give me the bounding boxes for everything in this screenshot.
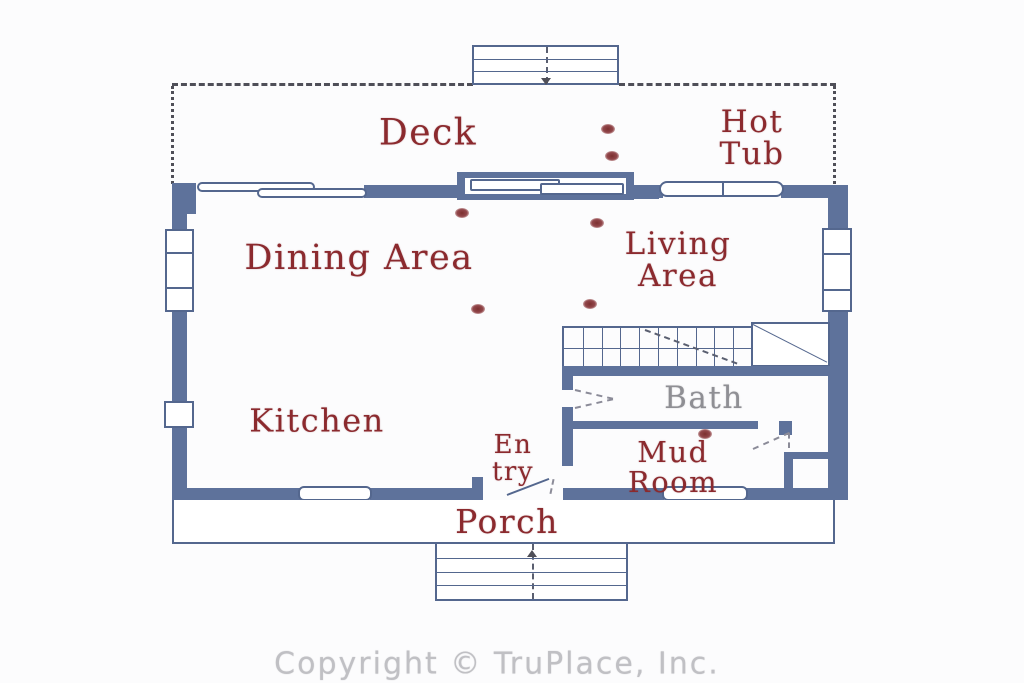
mud-room-label: Mud Room bbox=[628, 437, 718, 497]
deck-boundary-left bbox=[171, 86, 174, 184]
ceiling-light-dot bbox=[583, 299, 597, 309]
ceiling-light-dot bbox=[455, 208, 469, 218]
stair-tread bbox=[639, 328, 640, 368]
patio-door-tab-right bbox=[633, 190, 659, 199]
living-area-label: Living Area bbox=[625, 228, 732, 292]
stair-tread bbox=[583, 328, 584, 368]
window-kitchen-left bbox=[164, 401, 194, 428]
stair-tread bbox=[677, 328, 678, 368]
stair-tread bbox=[474, 71, 617, 72]
bath-door-swing-upper bbox=[575, 389, 613, 400]
stair-tread bbox=[474, 59, 617, 60]
dining-area-label: Dining Area bbox=[244, 240, 473, 276]
kitchen-label: Kitchen bbox=[249, 404, 385, 437]
deck-boundary-top-left bbox=[172, 83, 473, 86]
deck-boundary-right bbox=[833, 86, 836, 184]
stair-tread bbox=[714, 328, 715, 368]
wall-closet-top bbox=[791, 452, 830, 459]
porch-stairs-arrow-icon bbox=[527, 550, 537, 557]
wall-bath-top bbox=[562, 366, 830, 376]
deck-boundary-top-right bbox=[619, 83, 836, 86]
staircase-landing bbox=[751, 322, 830, 367]
wall-right-lower bbox=[828, 312, 848, 500]
deck-stairs bbox=[472, 45, 619, 85]
stair-tread bbox=[602, 328, 603, 368]
window-living-divider-1 bbox=[824, 253, 850, 255]
wall-right-upper bbox=[828, 185, 848, 230]
patio-door-slider-2 bbox=[540, 183, 624, 195]
ceiling-light-dot bbox=[605, 151, 619, 161]
window-living-right bbox=[822, 228, 852, 312]
wall-bath-left-lower bbox=[562, 407, 573, 466]
window-dining-divider-1 bbox=[167, 252, 192, 254]
staircase-landing-diagonal bbox=[753, 324, 827, 363]
ceiling-light-dot bbox=[601, 124, 615, 134]
floor-plan-image: Deck Hot Tub Dining Area Living Area Kit… bbox=[0, 0, 1024, 683]
deck-stairs-arrow-icon bbox=[541, 78, 551, 85]
front-door-jamb bbox=[472, 477, 483, 500]
ceiling-light-dot bbox=[590, 218, 604, 228]
entry-label: En try bbox=[492, 432, 534, 486]
window-top-right-mullion bbox=[722, 183, 724, 195]
stair-tread bbox=[620, 328, 621, 368]
window-dining-left bbox=[165, 229, 194, 312]
wall-left-upper bbox=[172, 183, 187, 230]
stair-tread bbox=[437, 558, 626, 559]
deck-label: Deck bbox=[379, 114, 477, 151]
window-dining-divider-2 bbox=[167, 287, 192, 289]
copyright-watermark: Copyright © TruPlace, Inc. bbox=[274, 647, 720, 682]
wall-bath-left-upper bbox=[562, 366, 573, 390]
stair-tread bbox=[437, 585, 626, 586]
window-bottom-left bbox=[298, 486, 372, 501]
wall-bottom-a bbox=[172, 488, 302, 500]
porch-stairs bbox=[435, 544, 628, 601]
hot-tub-label: Hot Tub bbox=[720, 106, 785, 170]
bath-door-swing-lower bbox=[575, 398, 613, 409]
ceiling-light-dot bbox=[471, 304, 485, 314]
bath-label: Bath bbox=[664, 382, 744, 414]
window-top-right bbox=[659, 181, 784, 197]
wall-bottom-d bbox=[746, 488, 848, 500]
stair-tread bbox=[437, 572, 626, 573]
mudroom-door-swing-2 bbox=[788, 433, 790, 448]
mudroom-door-swing bbox=[753, 432, 790, 450]
wall-closet-left bbox=[784, 452, 793, 500]
wall-bottom-b bbox=[370, 488, 475, 500]
wall-left-middle bbox=[172, 312, 187, 402]
porch-label: Porch bbox=[455, 505, 559, 539]
front-door-swing bbox=[549, 479, 554, 494]
staircase bbox=[562, 326, 752, 368]
wall-bath-mudroom-divider bbox=[573, 421, 758, 429]
window-living-divider-2 bbox=[824, 289, 850, 291]
sliding-door-panel-left-2 bbox=[257, 188, 367, 198]
